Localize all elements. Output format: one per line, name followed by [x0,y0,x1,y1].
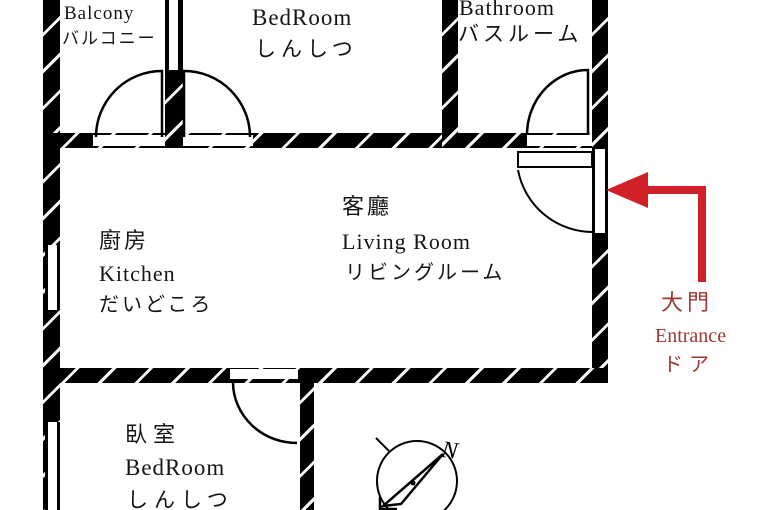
balcony-label-ja: バルコニー [62,29,157,49]
entrance-label-ja: ドア [663,354,715,377]
entrance-label-en: Entrance [655,325,726,348]
bedroom-bottom-door-arc [233,383,297,443]
entrance-door-arc [518,170,594,232]
compass-center-dot [411,481,416,486]
kitchen-label-ja: だいどころ [99,294,213,317]
compass-north-label: N [439,437,461,465]
bathroom-door-arc [527,70,588,135]
entrance-arrow [606,172,702,282]
bathroom-label-en: Bathroom [459,0,555,20]
bedroom-top-door-arc [184,71,250,137]
kitchen-label-zh: 廚房 [99,228,149,253]
balcony-label-en: Balcony [64,3,134,25]
compass-nw-tick [376,438,389,451]
compass-needle [383,454,443,506]
entrance-arrow-shaft [646,190,702,282]
entrance-label-zh: 大門 [661,290,713,315]
bedroom-bottom-label-en: BedRoom [125,455,225,481]
bedroom-top-label-ja: しんしつ [255,37,358,61]
bedroom-top-label-en: BedRoom [252,5,352,31]
living-room-label-zh: 客廳 [342,194,392,219]
kitchen-label-en: Kitchen [99,261,176,286]
living-room-label-ja: リビングルーム [345,262,505,285]
compass-rose: N [376,437,461,510]
bathroom-label-ja: バスルーム [458,22,582,46]
floor-plan: N Balcony バルコニー 臥室 BedRoom しんしつ Bathroom… [0,0,766,510]
entrance-arrow-head [606,172,648,208]
balcony-door-arc [96,71,162,137]
bedroom-bottom-label-ja: しんしつ [127,488,234,510]
floorplan-graphics: N [0,0,766,510]
bedroom-bottom-label-zh: 臥室 [125,422,181,447]
living-room-label-en: Living Room [342,229,471,254]
